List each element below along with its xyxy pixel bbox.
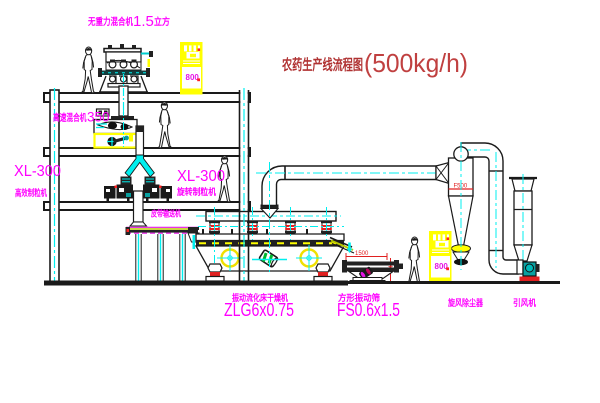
svg-text:(500kg/h): (500kg/h)	[364, 48, 468, 78]
svg-text:立方: 立方	[154, 16, 170, 28]
svg-text:高速混合机: 高速混合机	[53, 112, 87, 124]
svg-text:农药生产线流程图: 农药生产线流程图	[281, 56, 363, 74]
svg-text:旋转制粒机: 旋转制粒机	[176, 186, 216, 197]
svg-text:XL-300: XL-300	[14, 163, 61, 180]
svg-text:旋风除尘器: 旋风除尘器	[447, 297, 484, 308]
svg-text:FS0.6x1.5: FS0.6x1.5	[337, 300, 400, 320]
svg-text:高效制粒机: 高效制粒机	[15, 187, 47, 198]
svg-text:1.5: 1.5	[133, 13, 154, 30]
svg-text:无重力混合机: 无重力混合机	[87, 16, 133, 28]
svg-text:引风机: 引风机	[513, 297, 536, 308]
svg-text:皮带输送机: 皮带输送机	[150, 209, 181, 219]
svg-text:350: 350	[87, 110, 110, 125]
svg-text:ZLG6x0.75: ZLG6x0.75	[224, 300, 294, 320]
svg-text:XL-300: XL-300	[177, 168, 225, 185]
